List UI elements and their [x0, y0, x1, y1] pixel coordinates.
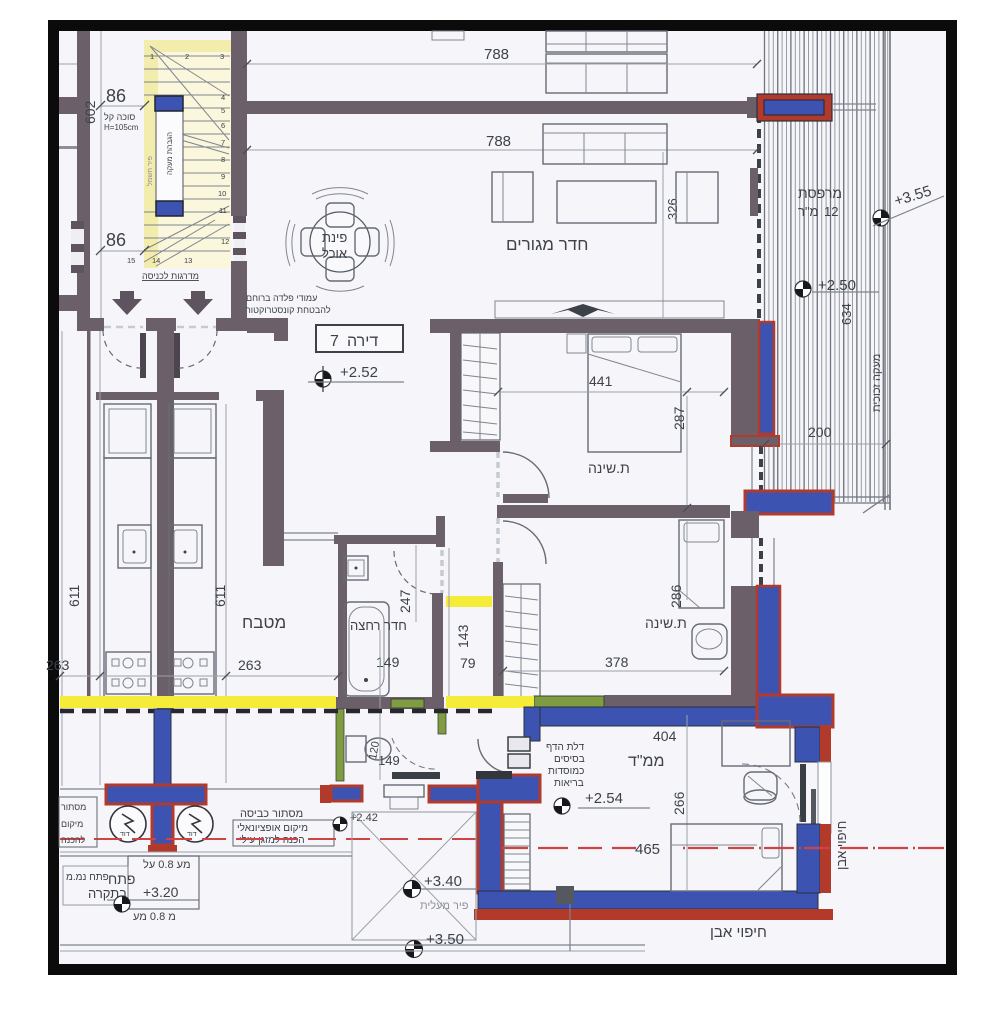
svg-text:7: 7 — [330, 333, 339, 350]
svg-text:פתח נמ.מ: פתח נמ.מ — [66, 872, 109, 883]
svg-text:6: 6 — [221, 121, 225, 130]
svg-text:326: 326 — [665, 198, 680, 220]
svg-text:1: 1 — [150, 52, 154, 61]
svg-text:חדר מגורים: חדר מגורים — [506, 235, 588, 254]
svg-text:7: 7 — [221, 138, 225, 147]
svg-text:12: 12 — [824, 204, 838, 219]
svg-text:+3.40: +3.40 — [424, 873, 462, 890]
svg-text:סוכה קל: סוכה קל — [104, 112, 135, 122]
svg-text:מיקום: מיקום — [61, 819, 83, 829]
svg-text:611: 611 — [212, 584, 228, 607]
svg-text:ת.שינה: ת.שינה — [588, 460, 630, 476]
svg-text:+2.54: +2.54 — [585, 790, 623, 807]
svg-text:13: 13 — [184, 256, 192, 265]
svg-text:404: 404 — [653, 728, 677, 744]
svg-text:מדרגות לכניסה: מדרגות לכניסה — [142, 271, 199, 281]
svg-text:מיקום אופציונאלי: מיקום אופציונאלי — [237, 822, 308, 834]
svg-text:11: 11 — [219, 206, 227, 215]
svg-text:3: 3 — [220, 52, 224, 61]
svg-text:634: 634 — [839, 303, 854, 325]
svg-text:4: 4 — [221, 93, 225, 102]
svg-text:פיר מעלית: פיר מעלית — [420, 899, 469, 912]
svg-text:דוד: דוד — [187, 831, 197, 838]
svg-text:602: 602 — [82, 100, 98, 124]
svg-text:200: 200 — [808, 424, 832, 440]
svg-text:2: 2 — [185, 52, 189, 61]
svg-text:חיפוי אבן: חיפוי אבן — [710, 924, 767, 941]
svg-text:אוכל: אוכל — [322, 246, 347, 261]
svg-text:441: 441 — [589, 373, 613, 389]
svg-text:ת.שינה: ת.שינה — [645, 615, 687, 631]
svg-text:דירה: דירה — [347, 333, 378, 350]
svg-text:378: 378 — [605, 654, 629, 670]
svg-text:בסיסים: בסיסים — [554, 754, 585, 765]
svg-text:פינת: פינת — [322, 230, 347, 245]
svg-text:15: 15 — [127, 256, 135, 265]
svg-text:611: 611 — [66, 584, 82, 607]
svg-text:788: 788 — [486, 133, 511, 150]
svg-text:263: 263 — [238, 657, 262, 673]
svg-text:מסתור כביסה: מסתור כביסה — [240, 808, 303, 820]
svg-text:מעקה זכוכית: מעקה זכוכית — [871, 354, 883, 412]
svg-text:286: 286 — [668, 584, 684, 608]
svg-text:+3.20: +3.20 — [143, 884, 179, 900]
svg-text:247: 247 — [397, 589, 413, 613]
svg-text:דוד: דוד — [120, 831, 130, 838]
svg-text:חדר רחצה: חדר רחצה — [350, 618, 407, 633]
svg-text:כמוסדות: כמוסדות — [548, 766, 584, 777]
svg-text:בריאות: בריאות — [554, 778, 584, 789]
svg-text:86: 86 — [106, 86, 126, 106]
svg-text:H=105cm: H=105cm — [104, 123, 139, 132]
svg-text:מסתור: מסתור — [61, 802, 86, 812]
svg-text:מע 0.8 על: מע 0.8 על — [143, 858, 191, 871]
svg-text:מ 0.8 מע: מ 0.8 מע — [133, 911, 176, 923]
svg-text:12: 12 — [221, 237, 229, 246]
svg-text:מ"ר: מ"ר — [798, 204, 819, 219]
svg-text:287: 287 — [671, 406, 687, 430]
svg-text:10: 10 — [218, 189, 226, 198]
svg-text:להכנה: להכנה — [61, 835, 85, 845]
svg-text:86: 86 — [106, 230, 126, 250]
svg-text:14: 14 — [152, 256, 160, 265]
svg-text:להבטחת קונסטרוקטור: להבטחת קונסטרוקטור — [246, 305, 331, 315]
svg-text:דלת הדף: דלת הדף — [546, 741, 585, 753]
svg-text:9: 9 — [221, 172, 225, 181]
svg-text:788: 788 — [484, 46, 509, 63]
svg-text:266: 266 — [671, 791, 687, 815]
svg-text:פיר חשמל: פיר חשמל — [146, 156, 154, 186]
svg-text:465: 465 — [635, 841, 660, 858]
svg-text:עמודי פלדה ברוחם: עמודי פלדה ברוחם — [246, 293, 317, 303]
svg-text:פתח: פתח — [108, 871, 135, 887]
svg-text:5: 5 — [221, 106, 225, 115]
svg-text:149: 149 — [378, 753, 400, 768]
svg-text:הגבהת מעקה: הגבהת מעקה — [165, 132, 174, 175]
svg-text:חיפוי אבן: חיפוי אבן — [834, 821, 849, 870]
svg-text:ממ"ד: ממ"ד — [628, 753, 665, 770]
svg-text:79: 79 — [460, 655, 476, 671]
svg-text:מטבח: מטבח — [242, 613, 286, 632]
svg-text:מרפסת: מרפסת — [798, 185, 842, 201]
svg-text:+2.52: +2.52 — [340, 364, 378, 381]
svg-text:263: 263 — [46, 657, 70, 673]
svg-text:143: 143 — [455, 624, 471, 648]
svg-text:8: 8 — [221, 155, 225, 164]
